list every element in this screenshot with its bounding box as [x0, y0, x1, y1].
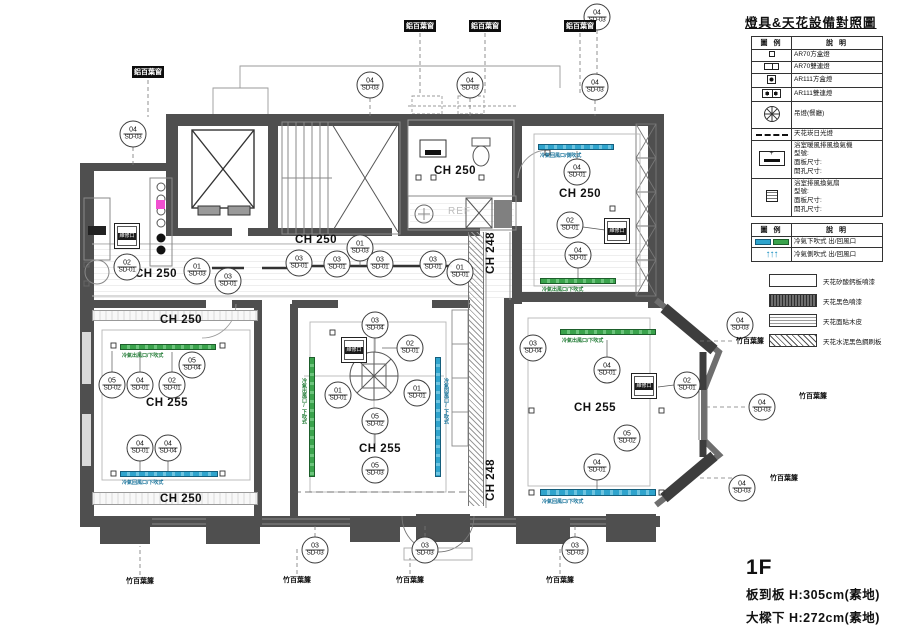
legend-header-row: 圖 例說 明: [752, 37, 883, 50]
bathroom: [408, 120, 548, 196]
plain-swatch-icon: [769, 274, 817, 287]
material-row: 天花面貼木皮: [769, 314, 893, 327]
dashed-light-icon: [756, 134, 788, 136]
legend-row: 吊燈(餐廳): [752, 101, 883, 128]
legend-icon-cell: [752, 101, 792, 128]
legend-row: AR111雙連燈: [752, 87, 883, 101]
ar111-light-icon: [767, 75, 776, 84]
legend-icon-cell: [752, 50, 792, 62]
window-seat-top: [92, 310, 258, 321]
material-label: 天花面貼木皮: [823, 316, 862, 326]
ceiling-plan-sheet: REF 04SD-0304SD-0304SD-0304SD-0304SD-030…: [0, 0, 900, 637]
legend-icon-cell: [752, 128, 792, 140]
height-line-1: 板到板 H:305cm(素地): [746, 584, 880, 603]
legend-icon-cell: [752, 178, 792, 216]
stairs: [282, 122, 400, 234]
legend-icon-cell: [752, 73, 792, 87]
legend-header-row: 圖 例說 明: [752, 223, 883, 236]
legend-label-cell: 浴室暖風排風換氣機型號:面板尺寸:開孔尺寸:: [792, 140, 883, 178]
legend-header: 圖 例: [752, 223, 792, 236]
legend-row: 浴室暖風排風換氣機型號:面板尺寸:開孔尺寸:: [752, 140, 883, 178]
legend-row: AR111方盒燈: [752, 73, 883, 87]
legend-materials: 天花矽酸鈣板噴漆天花黑色噴漆天花面貼木皮天花水泥黑色鋼刷板: [743, 274, 893, 347]
ar111-double-light-icon: [762, 89, 781, 98]
material-label: 天花黑色噴漆: [823, 296, 862, 306]
legend-title: 燈具&天花設備對照圖: [745, 12, 893, 31]
floor-label: 1F: [746, 556, 880, 580]
legend-row: AR70方盒燈: [752, 50, 883, 62]
legend-row: 天花崁日光燈: [752, 128, 883, 140]
legend-label-cell: AR70方盒燈: [792, 50, 883, 62]
legend-row: AR70雙連燈: [752, 61, 883, 73]
material-row: 天花黑色噴漆: [769, 294, 893, 307]
legend-table-hvac: 圖 例說 明冷氣下吹式 出/回風口↑↑↑冷氣側吹式 出/回風口: [751, 223, 883, 263]
legend-header: 說 明: [792, 223, 883, 236]
legend-label-cell: AR111方盒燈: [792, 73, 883, 87]
material-label: 天花水泥黑色鋼刷板: [823, 336, 882, 346]
legend-header: 說 明: [792, 37, 883, 50]
legend-row: 浴室排風換氣扇型號:面板尺寸:開孔尺寸:: [752, 178, 883, 216]
legend-label-cell: 吊燈(餐廳): [792, 101, 883, 128]
chandelier-icon: [761, 103, 783, 125]
hatch-strip: [468, 232, 484, 506]
double-square-light-icon: [764, 63, 779, 70]
dark-hatch-swatch-icon: [769, 294, 817, 307]
elevator: [192, 130, 254, 215]
legend-label-cell: 冷氣側吹式 出/回風口: [792, 248, 883, 262]
window-seat-bottom: [92, 492, 258, 505]
bath-heater-icon: [759, 151, 785, 166]
refrigerator-label: REF: [448, 206, 471, 217]
legend-header: 圖 例: [752, 37, 792, 50]
legend-label-cell: AR111雙連燈: [792, 87, 883, 101]
title-block: 1F 板到板 H:305cm(素地) 大樑下 H:272cm(素地): [746, 556, 880, 626]
legend-block: 燈具&天花設備對照圖 圖 例說 明AR70方盒燈AR70雙連燈AR111方盒燈A…: [743, 12, 893, 347]
material-label: 天花矽酸鈣板噴漆: [823, 276, 875, 286]
legend-icon-cell: [752, 140, 792, 178]
legend-icon-cell: [752, 236, 792, 248]
linear-diffuser-icon: [755, 239, 789, 246]
legend-table-lights: 圖 例說 明AR70方盒燈AR70雙連燈AR111方盒燈AR111雙連燈吊燈(餐…: [751, 36, 883, 217]
vent-fan-icon: [766, 190, 778, 202]
material-row: 天花水泥黑色鋼刷板: [769, 334, 893, 347]
diag-hatch-swatch-icon: [769, 334, 817, 347]
legend-label-cell: AR70雙連燈: [792, 61, 883, 73]
legend-row: ↑↑↑冷氣側吹式 出/回風口: [752, 248, 883, 262]
legend-icon-cell: [752, 87, 792, 101]
wood-swatch-icon: [769, 314, 817, 327]
legend-label-cell: 天花崁日光燈: [792, 128, 883, 140]
height-line-2: 大樑下 H:272cm(素地): [746, 607, 880, 626]
legend-icon-cell: [752, 61, 792, 73]
legend-label-cell: 冷氣下吹式 出/回風口: [792, 236, 883, 248]
legend-row: 冷氣下吹式 出/回風口: [752, 236, 883, 248]
side-blow-arrows-icon: ↑↑↑: [766, 249, 778, 260]
chandelier-symbol: [304, 316, 444, 446]
legend-icon-cell: ↑↑↑: [752, 248, 792, 262]
legend-label-cell: 浴室排風換氣扇型號:面板尺寸:開孔尺寸:: [792, 178, 883, 216]
square-light-icon: [769, 51, 775, 57]
material-row: 天花矽酸鈣板噴漆: [769, 274, 893, 287]
